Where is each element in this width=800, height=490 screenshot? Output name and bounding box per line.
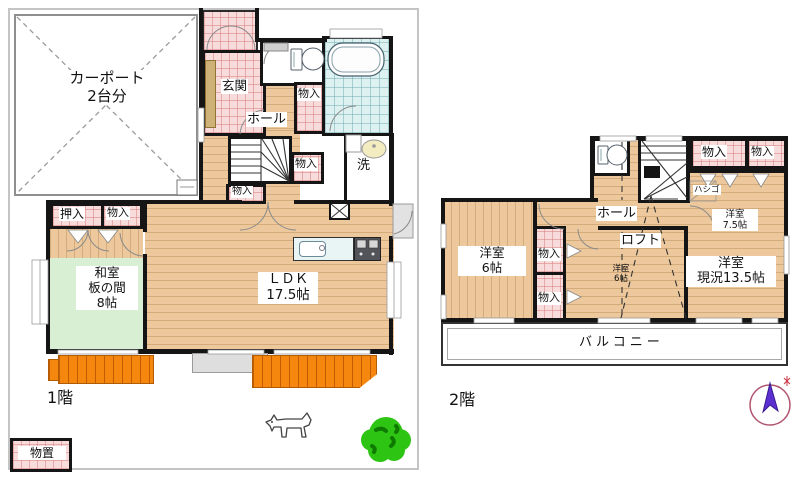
wall: [441, 198, 445, 322]
wall: [143, 254, 147, 354]
ladder-label: ハシゴ: [693, 185, 721, 195]
wall: [199, 8, 203, 204]
wall: [688, 166, 788, 170]
washitsu-label-line3: 8帖: [77, 296, 137, 311]
storage-by-toilet-label: 物入: [297, 88, 321, 101]
washitsu-label-line1: 和室: [77, 266, 137, 281]
itanoma-floor: [50, 229, 143, 261]
carport-label-line2: 2台分: [31, 88, 183, 106]
pillar: [329, 202, 350, 220]
floor1-label: 1階: [46, 389, 74, 408]
toilet-room-1f: [260, 40, 326, 86]
wall: [389, 236, 393, 355]
wood-deck-left: [58, 355, 154, 384]
west-room-6-label: 洋室 6帖: [458, 246, 526, 276]
west-room-75-line1: 洋室: [713, 209, 757, 220]
wall: [441, 198, 598, 202]
wall: [143, 200, 147, 232]
floor2-label: 2階: [448, 391, 476, 410]
entrance-porch: [202, 10, 258, 52]
west-room-75-label: 洋室 7.5帖: [712, 209, 758, 231]
west-room-135-label: 洋室 現況13.5帖: [686, 256, 776, 287]
west-room-6-small-line2: 6帖: [603, 274, 639, 284]
storage-2f-mid-lower-label: 物入: [537, 292, 561, 305]
carport-label: カーポート 2台分: [30, 70, 184, 105]
west-room-75-line2: 7.5帖: [713, 220, 757, 231]
genkan-label: 玄関: [221, 79, 248, 94]
bathroom: [322, 36, 392, 136]
wall: [590, 136, 594, 202]
balcony-label: バルコニー: [578, 335, 665, 350]
loft-label: ロフト: [620, 233, 661, 248]
shed-label: 物置: [18, 446, 66, 460]
hall-2f-label: ホール: [596, 206, 637, 221]
wall: [143, 349, 394, 354]
carport-label-line1: カーポート: [31, 70, 183, 88]
hall-1f-label: ホール: [246, 112, 287, 127]
wood-deck-right: [252, 355, 377, 388]
wall: [143, 200, 242, 204]
oshiire-label: 押入: [59, 207, 85, 221]
floorplan-canvas: カーポート 2台分 玄関 ホール 物入 物入 物入 押入 物入 和室 板の間 8…: [0, 0, 800, 490]
kitchen-sink: [299, 241, 326, 257]
wall: [686, 136, 690, 202]
storage-by-wash-label: 物入: [294, 158, 318, 171]
ldk-label-line1: ＬＤＫ: [259, 272, 317, 288]
storage-2f-mid-upper-label: 物入: [537, 248, 561, 261]
ldk-label: ＬＤＫ 17.5帖: [258, 272, 318, 304]
stairs-2f: [638, 138, 690, 203]
stairs-1f: [228, 136, 292, 184]
laundry-label: 洗: [356, 158, 371, 173]
west-room-6-line1: 洋室: [459, 246, 525, 261]
kitchen-stove: [354, 237, 381, 261]
storage-2f-top-left-label: 物入: [701, 145, 727, 159]
west-room-135-line2: 現況13.5帖: [687, 271, 775, 286]
wall: [389, 36, 393, 206]
shoe-cabinet: [205, 60, 216, 128]
storage-under-stairs-label: 物入: [231, 186, 253, 198]
washitsu-label-line2: 板の間: [77, 281, 137, 296]
wall: [255, 8, 259, 42]
storage-washitsu-label: 物入: [106, 207, 130, 220]
wall: [598, 226, 688, 230]
toilet-room-2f: [592, 138, 630, 176]
wall: [46, 200, 50, 354]
west-room-6-small-line1: 洋室: [603, 264, 639, 274]
wall: [255, 38, 327, 42]
compass-north-arrow: [744, 374, 798, 432]
wall: [294, 200, 394, 204]
west-room-6-small-label: 洋室 6帖: [602, 264, 640, 284]
wall: [784, 136, 788, 322]
west-room-135-line1: 洋室: [687, 256, 775, 271]
west-room-6-line2: 6帖: [459, 261, 525, 276]
ldk-label-line2: 17.5帖: [259, 288, 317, 304]
wall: [46, 349, 146, 354]
washitsu-label: 和室 板の間 8帖: [76, 266, 138, 310]
storage-2f-top-right-label: 物入: [750, 146, 774, 159]
